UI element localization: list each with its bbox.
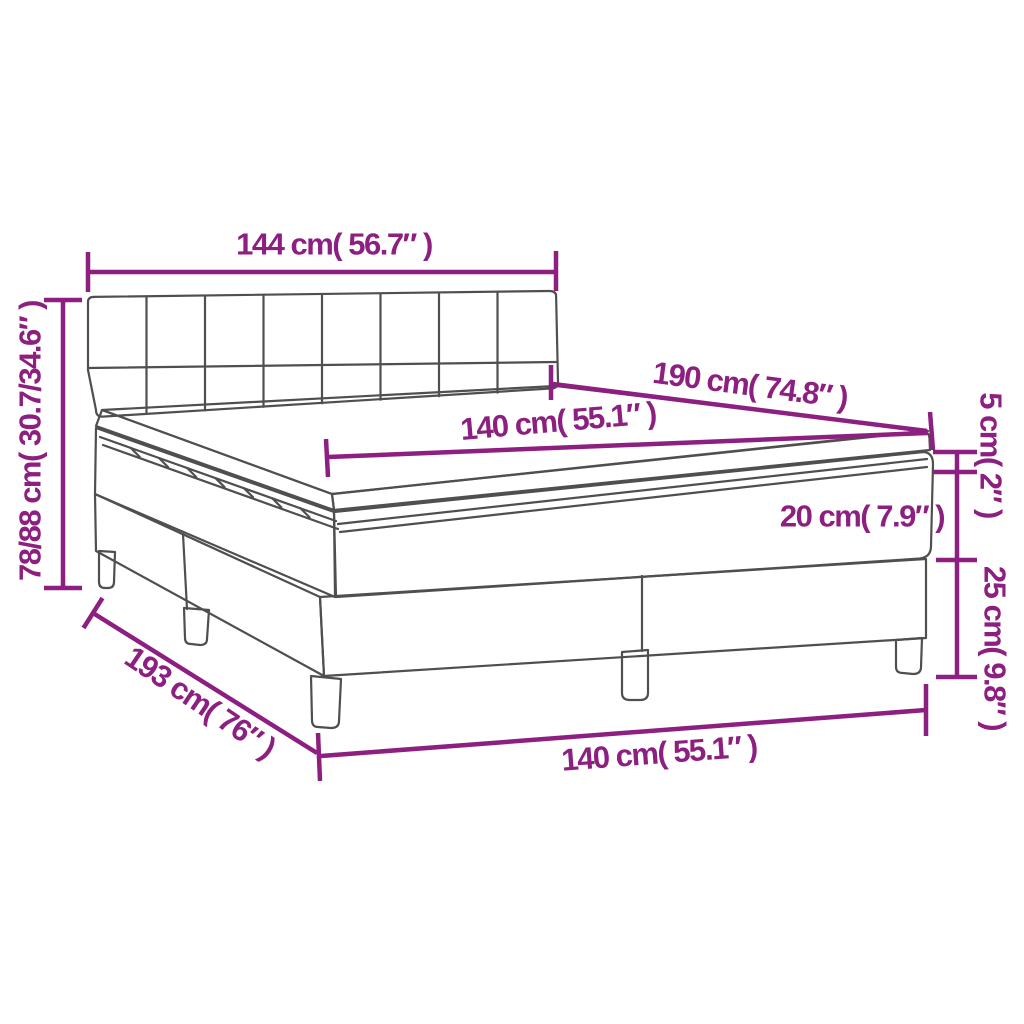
- total-height-dimension: [44, 300, 82, 588]
- total-height-label: 78/88 cm( 30.7/34.6″ ): [15, 301, 46, 581]
- topper-thickness-label: 5 cm( 2″ ): [976, 392, 1007, 518]
- dimension-diagram: 144 cm( 56.7″ ) 78/88 cm( 30.7/34.6″ ) 1…: [0, 0, 1024, 1024]
- base-height-label: 25 cm( 9.8″ ): [980, 566, 1011, 730]
- mattress-thickness-label: 20 cm( 7.9″ ): [780, 501, 944, 532]
- thickness-dimension: [933, 452, 977, 677]
- headboard-width-label: 144 cm( 56.7″ ): [236, 229, 432, 260]
